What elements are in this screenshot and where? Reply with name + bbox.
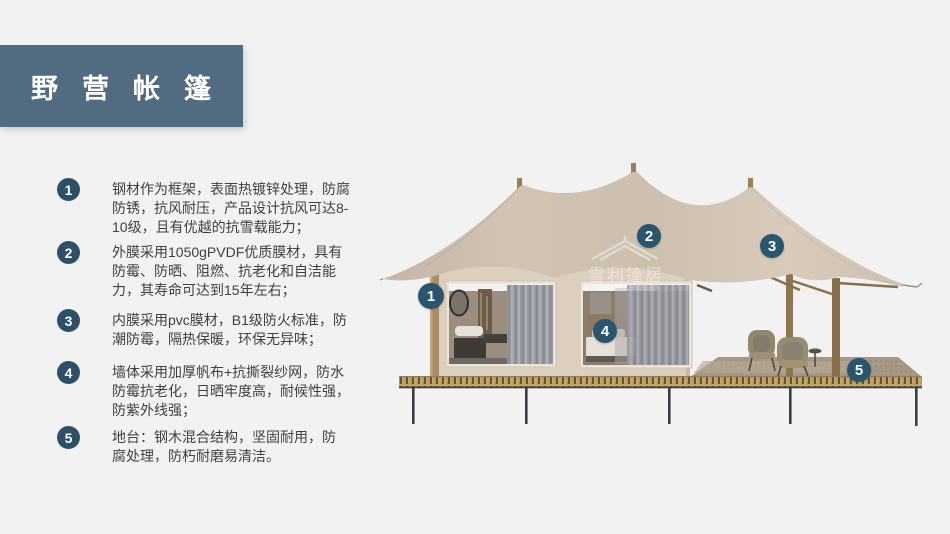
feature-text: 墙体采用加厚帆布+抗撕裂纱网，防水 防霉抗老化，日晒牢度高，耐候性强， 防紫外线…	[112, 363, 350, 420]
deck-leg	[525, 388, 528, 424]
feature-number-badge: 1	[57, 178, 80, 201]
feature-text: 外膜采用1050gPVDF优质膜材，具有 防霉、防晒、阻燃、抗老化和自洁能 力，…	[112, 243, 342, 300]
feature-number-badge: 2	[57, 241, 80, 264]
counter	[484, 334, 507, 343]
curtain	[507, 285, 553, 364]
porch-rafter	[697, 285, 712, 291]
armchair-cushion	[753, 335, 770, 352]
curtain	[627, 285, 689, 365]
deck-leg	[789, 388, 792, 424]
window-bathroom	[446, 281, 556, 367]
deck-edge	[399, 376, 922, 426]
watermark-subtext-bar	[594, 285, 658, 291]
tent-svg: 雪利篷居	[380, 150, 950, 450]
title-bar: 野营帐篷	[0, 45, 243, 127]
callout-badge-2: 2	[637, 224, 661, 248]
sheer-mid-curtain	[615, 288, 633, 364]
deck-frame-line	[399, 387, 922, 389]
page-title: 野营帐篷	[31, 67, 235, 106]
slide: { "title": "野营帐篷", "features": [ { "num"…	[0, 0, 950, 534]
feature-number-badge: 3	[57, 309, 80, 332]
callout-badge-5: 5	[847, 358, 871, 382]
roof-tip-rope	[903, 283, 922, 287]
feature-text: 钢材作为框架，表面热镀锌处理，防腐 防锈，抗风耐压，产品设计抗风可达8- 10级…	[112, 180, 350, 237]
armchair-seat	[749, 352, 775, 359]
deck-leg	[412, 388, 415, 424]
deck-leg	[915, 388, 918, 426]
feature-text: 地台：钢木混合结构，坚固耐用，防 腐处理，防朽耐磨易清洁。	[112, 428, 336, 466]
watermark-text: 雪利篷居	[588, 266, 664, 285]
callout-badge-3: 3	[760, 234, 784, 258]
interior-floor-shadow	[449, 358, 507, 364]
feature-item-4: 4 墙体采用加厚帆布+抗撕裂纱网，防水 防霉抗老化，日晒牢度高，耐候性强， 防紫…	[57, 363, 350, 420]
armchair-cushion	[782, 342, 803, 361]
armchair-seat	[778, 360, 808, 368]
feature-number-badge: 4	[57, 361, 80, 384]
feature-item-2: 2 外膜采用1050gPVDF优质膜材，具有 防霉、防晒、阻燃、抗老化和自洁能 …	[57, 243, 342, 300]
feature-item-3: 3 内膜采用pvc膜材，B1级防火标准，防 潮防霉，隔热保暖，环保无异味；	[57, 311, 347, 349]
deck-band-top-line	[399, 376, 922, 377]
deck-leg	[668, 388, 671, 424]
sink	[455, 326, 483, 336]
tent-illustration: 雪利篷居	[380, 150, 950, 450]
callout-badge-4: 4	[593, 319, 617, 343]
callout-badge-1: 1	[418, 283, 444, 309]
feature-text: 内膜采用pvc膜材，B1级防火标准，防 潮防霉，隔热保暖，环保无异味；	[112, 311, 347, 349]
mirror	[450, 291, 468, 316]
roof-tip-rope	[380, 279, 383, 281]
feature-number-badge: 5	[57, 426, 80, 449]
feature-item-5: 5 地台：钢木混合结构，坚固耐用，防 腐处理，防朽耐磨易清洁。	[57, 428, 336, 466]
deck-band	[399, 377, 922, 388]
feature-item-1: 1 钢材作为框架，表面热镀锌处理，防腐 防锈，抗风耐压，产品设计抗风可达8- 1…	[57, 180, 350, 237]
